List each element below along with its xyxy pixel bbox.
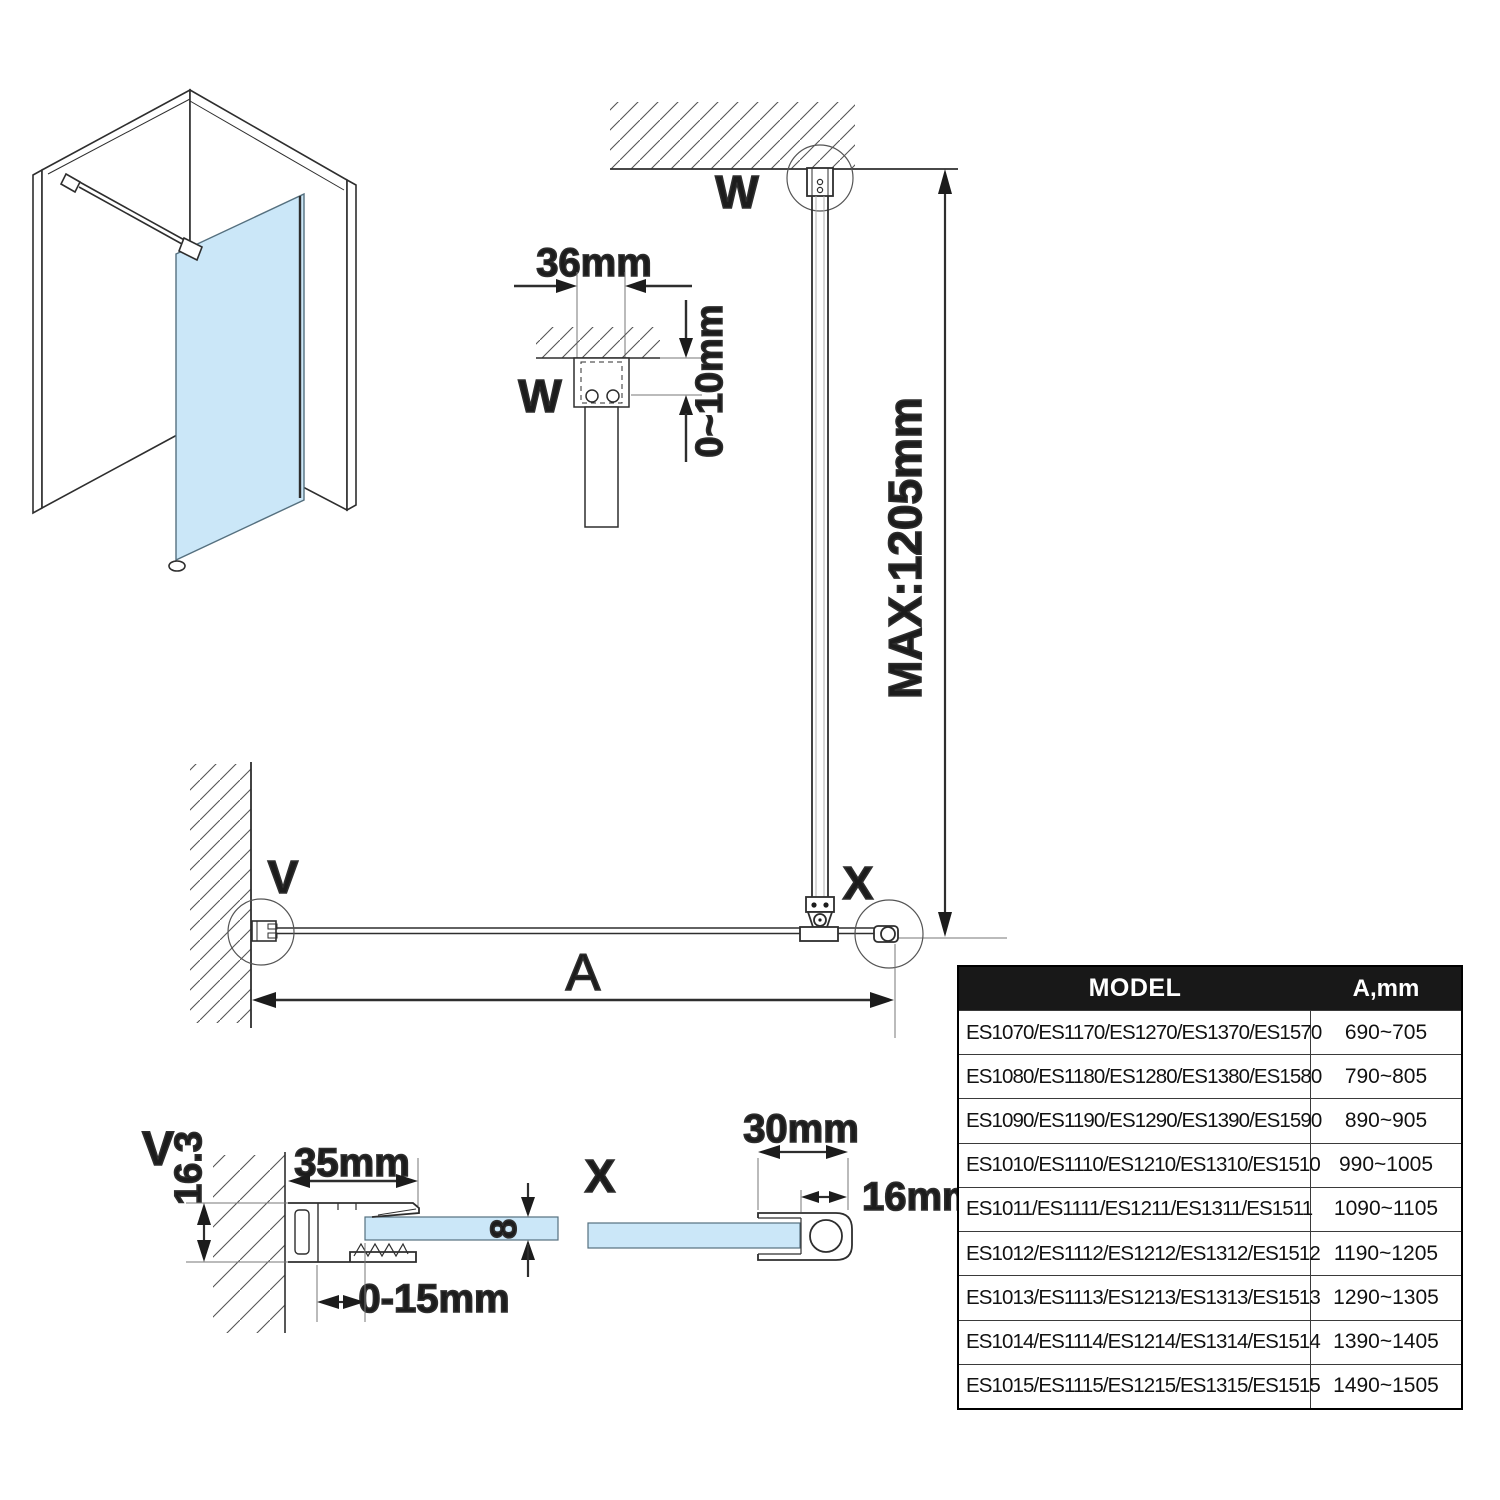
table-row: ES1013/ES1113/ES1213/ES1313/ES1513 1290~… <box>959 1275 1461 1319</box>
end-profile-tube <box>810 1220 842 1252</box>
header-a-mm: A,mm <box>1311 967 1461 1010</box>
table-row: ES1010/ES1110/ES1210/ES1310/ES1510 990~1… <box>959 1143 1461 1187</box>
wall-hatch-v <box>213 1155 285 1333</box>
w-detail-label: W <box>518 370 562 422</box>
model-cell: ES1013/ES1113/ES1213/ES1313/ES1513 <box>959 1276 1311 1319</box>
ceiling-bracket <box>807 168 833 196</box>
bar-bottom-bracket <box>806 897 834 912</box>
w-elevation-label: W <box>715 166 759 218</box>
profile-depth-dim: 16.3 <box>168 1131 210 1205</box>
table-row: ES1012/ES1112/ES1212/ES1312/ES1512 1190~… <box>959 1231 1461 1275</box>
a-cell: 1290~1305 <box>1311 1276 1461 1319</box>
model-table: MODEL A,mm ES1070/ES1170/ES1270/ES1370/E… <box>957 965 1463 1410</box>
w-detail-gap-dim: 0~10mm <box>689 304 731 457</box>
model-cell: ES1090/ES1190/ES1290/ES1390/ES1590 <box>959 1099 1311 1142</box>
end-profile-width-dim: 30mm <box>743 1107 859 1151</box>
left-wall <box>42 90 190 508</box>
technical-drawing-page: { "labels": { "w_elevation": "W", "w_det… <box>0 0 1500 1500</box>
a-dim-label: A <box>566 944 601 1002</box>
x-plan-label: X <box>843 857 874 909</box>
table-row: ES1080/ES1180/ES1280/ES1380/ES1580 790~8… <box>959 1054 1461 1098</box>
w-detail-bracket-width: 36mm <box>536 241 652 285</box>
a-cell: 1190~1205 <box>1311 1232 1461 1275</box>
a-cell: 1390~1405 <box>1311 1321 1461 1364</box>
plan-view: V X A <box>190 762 923 1038</box>
model-cell: ES1014/ES1114/ES1214/ES1314/ES1514 <box>959 1321 1311 1364</box>
model-cell: ES1010/ES1110/ES1210/ES1310/ES1510 <box>959 1144 1311 1187</box>
wall-profile-section <box>288 1203 419 1217</box>
right-wall-edge <box>347 180 356 510</box>
x-detail-label: X <box>585 1150 616 1202</box>
header-model: MODEL <box>959 967 1311 1010</box>
v-plan-label: V <box>268 851 299 903</box>
glass-foot-iso <box>169 561 185 571</box>
bar-glass-clamp <box>800 927 838 941</box>
model-cell: ES1015/ES1115/ES1215/ES1315/ES1515 <box>959 1365 1311 1408</box>
a-cell: 1490~1505 <box>1311 1365 1461 1408</box>
ceiling-hatch-small <box>536 327 660 358</box>
model-table-header: MODEL A,mm <box>959 967 1461 1010</box>
a-cell: 890~905 <box>1311 1099 1461 1142</box>
v-detail: V 16.3 35mm 8 0-15mm <box>142 1123 558 1333</box>
glass-thickness-dim: 8 <box>483 1219 524 1239</box>
glass-panel-x <box>588 1223 800 1248</box>
model-cell: ES1011/ES1111/ES1211/ES1311/ES1511 <box>959 1188 1311 1231</box>
table-row: ES1090/ES1190/ES1290/ES1390/ES1590 890~9… <box>959 1098 1461 1142</box>
max-height-dim: MAX:1205mm <box>879 397 931 699</box>
elevation-view: W MAX:1205mm <box>610 102 1007 938</box>
table-row: ES1070/ES1170/ES1270/ES1370/ES1570 690~7… <box>959 1010 1461 1054</box>
model-cell: ES1012/ES1112/ES1212/ES1312/ES1512 <box>959 1232 1311 1275</box>
model-cell: ES1080/ES1180/ES1280/ES1380/ES1580 <box>959 1055 1311 1098</box>
a-cell: 1090~1105 <box>1311 1188 1461 1231</box>
ceiling-bracket-detail <box>574 358 629 407</box>
table-row: ES1011/ES1111/ES1211/ES1311/ES1511 1090~… <box>959 1187 1461 1231</box>
w-detail: 36mm W 0~10mm <box>514 241 731 527</box>
support-bar-detail <box>585 407 618 527</box>
profile-width-dim: 35mm <box>294 1141 410 1185</box>
glass-panel-v <box>365 1217 558 1240</box>
a-cell: 690~705 <box>1311 1011 1461 1054</box>
wall-hatch-plan <box>190 764 251 1023</box>
a-cell: 790~805 <box>1311 1055 1461 1098</box>
table-row: ES1014/ES1114/ES1214/ES1314/ES1514 1390~… <box>959 1320 1461 1364</box>
ceiling-hatch <box>610 102 855 169</box>
a-cell: 990~1005 <box>1311 1144 1461 1187</box>
adjustment-dim: 0-15mm <box>358 1277 509 1321</box>
isometric-view <box>33 90 356 571</box>
table-row: ES1015/ES1115/ES1215/ES1315/ES1515 1490~… <box>959 1364 1461 1408</box>
x-detail: X 30mm 16mm <box>585 1107 978 1260</box>
model-cell: ES1070/ES1170/ES1270/ES1370/ES1570 <box>959 1011 1311 1054</box>
left-wall-edge <box>33 170 42 513</box>
